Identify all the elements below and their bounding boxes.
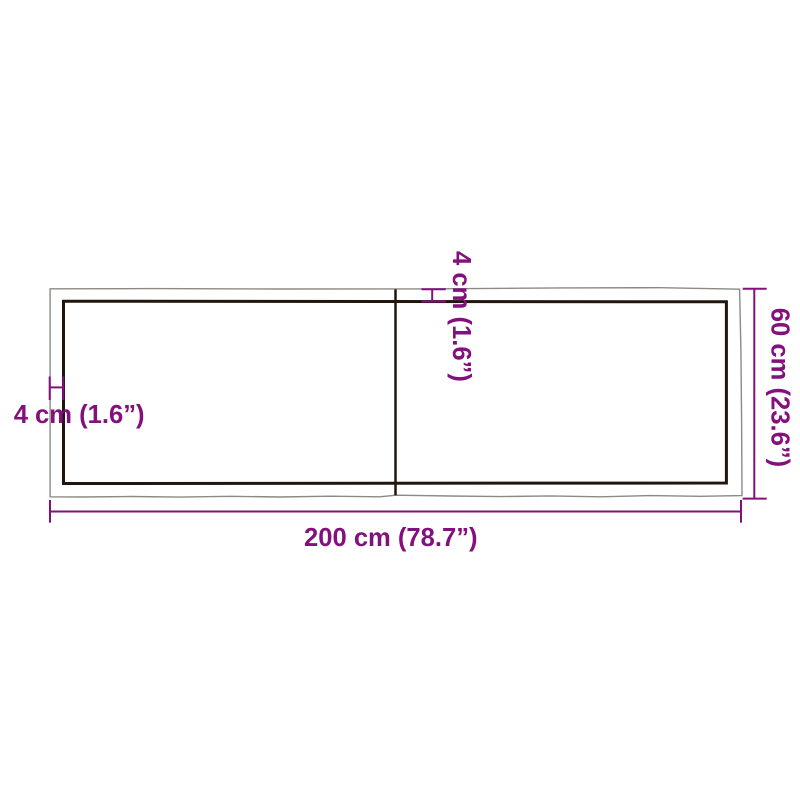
svg-text:4 cm (1.6”): 4 cm (1.6”) — [14, 401, 145, 429]
svg-text:4 cm (1.6”): 4 cm (1.6”) — [447, 251, 475, 382]
svg-text:60 cm (23.6”): 60 cm (23.6”) — [766, 308, 794, 467]
svg-text:200 cm (78.7”): 200 cm (78.7”) — [304, 524, 478, 552]
